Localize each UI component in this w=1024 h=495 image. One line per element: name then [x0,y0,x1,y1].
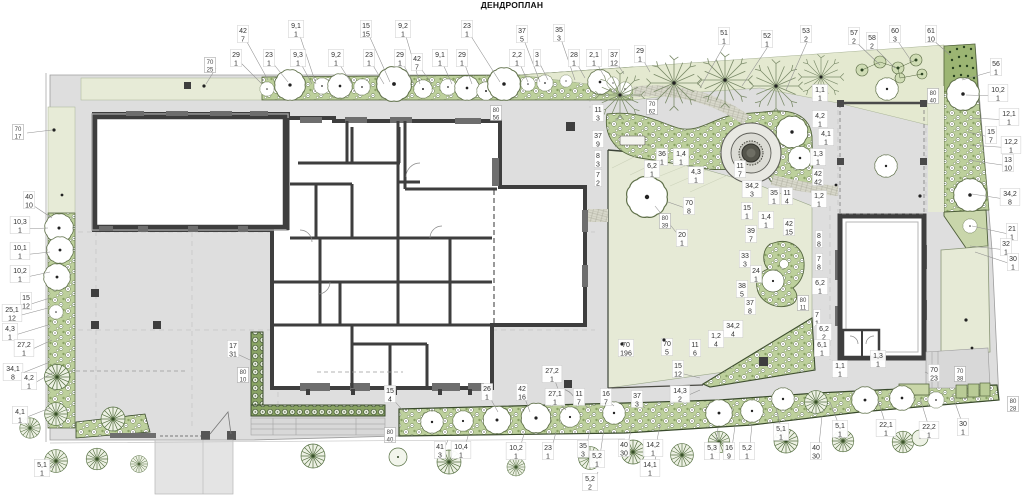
svg-text:38: 38 [738,283,746,290]
svg-text:10,1: 10,1 [13,245,27,252]
svg-text:70: 70 [685,200,693,207]
svg-text:1: 1 [1011,265,1015,272]
svg-text:1: 1 [764,223,768,230]
svg-text:7: 7 [241,37,245,44]
svg-text:2,1: 2,1 [589,52,599,59]
svg-text:1,3: 1,3 [873,353,883,360]
svg-text:1: 1 [679,160,683,167]
svg-text:2: 2 [678,397,682,404]
svg-text:37: 37 [746,300,754,307]
svg-text:22,2: 22,2 [922,424,936,431]
svg-text:52: 52 [763,33,771,40]
svg-text:8: 8 [817,242,821,249]
svg-text:5: 5 [520,37,524,44]
svg-text:1,1: 1,1 [835,363,845,370]
svg-text:1: 1 [816,160,820,167]
svg-text:16: 16 [518,395,526,402]
svg-text:27,2: 27,2 [17,342,31,349]
svg-text:10,3: 10,3 [13,219,27,226]
svg-text:7: 7 [577,400,581,407]
svg-text:2: 2 [852,39,856,46]
svg-text:1: 1 [18,254,22,261]
svg-text:11: 11 [736,163,743,170]
svg-text:5,1: 5,1 [835,423,845,430]
svg-text:8: 8 [1008,200,1012,207]
svg-text:2,2: 2,2 [512,52,522,59]
svg-text:57: 57 [850,30,858,37]
svg-text:53: 53 [802,28,810,35]
svg-text:62: 62 [649,110,656,116]
svg-text:1: 1 [765,42,769,49]
svg-text:1: 1 [694,178,698,185]
svg-text:3: 3 [535,52,539,59]
svg-text:1: 1 [824,140,828,147]
svg-text:30: 30 [959,421,967,428]
svg-text:27,1: 27,1 [548,391,562,398]
svg-text:31: 31 [229,352,237,359]
svg-text:1: 1 [638,57,642,64]
svg-text:30: 30 [812,454,820,461]
svg-text:11: 11 [575,391,582,398]
svg-text:1: 1 [710,454,714,461]
svg-text:26: 26 [483,386,491,393]
svg-text:1: 1 [234,61,238,68]
svg-text:1: 1 [779,435,783,442]
svg-text:1: 1 [722,39,726,46]
svg-text:1: 1 [884,431,888,438]
svg-text:3: 3 [438,453,442,460]
svg-text:60: 60 [891,28,899,35]
svg-text:6,2: 6,2 [647,163,657,170]
svg-text:4: 4 [714,342,718,349]
svg-text:39: 39 [747,228,755,235]
svg-text:5,1: 5,1 [776,426,786,433]
svg-text:9,2: 9,2 [398,23,408,30]
svg-text:15: 15 [743,205,751,212]
svg-text:56: 56 [992,61,1000,68]
svg-text:37: 37 [610,52,618,59]
svg-text:8: 8 [11,375,15,382]
svg-text:1: 1 [550,377,554,384]
svg-text:1: 1 [660,160,664,167]
svg-text:1: 1 [651,451,655,458]
svg-text:42: 42 [785,221,793,228]
svg-text:3: 3 [635,402,639,409]
svg-text:1: 1 [40,471,44,478]
svg-text:23: 23 [365,52,373,59]
svg-text:7: 7 [738,172,742,179]
svg-text:1: 1 [772,199,776,206]
svg-text:35: 35 [579,443,587,450]
svg-text:23: 23 [463,23,471,30]
svg-text:1: 1 [27,384,31,391]
svg-text:1: 1 [1009,148,1013,155]
svg-text:11: 11 [691,342,698,349]
svg-text:1: 1 [460,61,464,68]
svg-text:11: 11 [783,190,790,197]
svg-text:4: 4 [731,332,735,339]
svg-text:23: 23 [930,376,938,383]
svg-text:1: 1 [595,462,599,469]
svg-text:1: 1 [459,453,463,460]
svg-text:17: 17 [229,343,237,350]
svg-text:35: 35 [770,190,778,197]
svg-text:1: 1 [294,32,298,39]
svg-text:1,3: 1,3 [813,151,823,158]
svg-text:8: 8 [687,209,691,216]
svg-text:8: 8 [596,153,600,160]
svg-text:1: 1 [648,471,652,478]
svg-text:37: 37 [594,133,602,140]
svg-text:3: 3 [596,162,600,169]
svg-text:3: 3 [581,452,585,459]
svg-text:1: 1 [18,418,22,425]
svg-text:7: 7 [817,256,821,263]
svg-text:5,1: 5,1 [37,462,47,469]
svg-text:1: 1 [515,61,519,68]
svg-text:16: 16 [725,445,733,452]
svg-text:7: 7 [604,400,608,407]
svg-text:34,2: 34,2 [726,323,740,330]
svg-text:70: 70 [15,127,22,133]
svg-text:1: 1 [838,432,842,439]
svg-text:15: 15 [22,295,30,302]
svg-text:4,1: 4,1 [821,131,831,138]
svg-text:12,1: 12,1 [1002,111,1016,118]
svg-text:1: 1 [961,430,965,437]
svg-text:12: 12 [8,316,16,323]
svg-text:5,2: 5,2 [592,453,602,460]
svg-text:1: 1 [572,61,576,68]
svg-text:12,2: 12,2 [1004,139,1018,146]
svg-text:1: 1 [1007,120,1011,127]
svg-text:1: 1 [927,433,931,440]
svg-text:34,2: 34,2 [745,183,759,190]
svg-text:3: 3 [893,37,897,44]
svg-text:4,2: 4,2 [24,375,34,382]
svg-text:80: 80 [662,216,669,222]
svg-text:1: 1 [754,277,758,284]
svg-text:30: 30 [1009,256,1017,263]
svg-text:20: 20 [678,232,686,239]
svg-text:51: 51 [720,30,728,37]
svg-text:1: 1 [535,61,539,68]
svg-text:11: 11 [594,107,601,114]
svg-text:1: 1 [18,277,22,284]
svg-text:4,1: 4,1 [15,409,25,416]
svg-text:10,4: 10,4 [454,444,468,451]
svg-text:1: 1 [514,454,518,461]
svg-text:37: 37 [518,28,526,35]
svg-text:7: 7 [815,312,819,319]
svg-text:1: 1 [367,61,371,68]
svg-text:2: 2 [870,44,874,51]
svg-text:15: 15 [987,129,995,136]
svg-text:3: 3 [750,192,754,199]
svg-text:70: 70 [207,60,214,66]
svg-text:22,1: 22,1 [879,422,893,429]
svg-text:80: 80 [800,298,807,304]
svg-text:24: 24 [752,268,760,275]
svg-text:14,2: 14,2 [646,442,660,449]
svg-text:34,1: 34,1 [6,366,20,373]
svg-text:42: 42 [518,386,526,393]
svg-text:23: 23 [544,445,552,452]
svg-text:10,2: 10,2 [991,87,1005,94]
svg-text:14,3: 14,3 [673,388,687,395]
svg-text:1: 1 [546,454,550,461]
svg-text:56: 56 [493,116,500,122]
svg-text:1: 1 [818,122,822,129]
svg-text:61: 61 [927,28,935,35]
svg-text:40: 40 [620,442,628,449]
svg-text:10: 10 [25,203,33,210]
svg-text:1: 1 [994,70,998,77]
svg-text:5,2: 5,2 [585,476,595,483]
svg-text:1: 1 [818,289,822,296]
svg-text:6,2: 6,2 [819,326,829,333]
svg-text:80: 80 [493,108,500,114]
svg-text:1: 1 [820,351,824,358]
svg-text:1: 1 [818,96,822,103]
svg-text:35: 35 [555,27,563,34]
svg-text:40: 40 [930,99,937,105]
svg-text:4: 4 [785,199,789,206]
svg-text:2: 2 [804,37,808,44]
svg-text:1: 1 [8,335,12,342]
svg-text:10: 10 [1004,166,1012,173]
svg-text:8: 8 [817,265,821,272]
svg-text:2: 2 [596,181,600,188]
svg-text:28: 28 [570,52,578,59]
svg-text:34,2: 34,2 [1003,191,1017,198]
svg-text:1: 1 [485,395,489,402]
svg-text:70: 70 [649,102,656,108]
svg-text:33: 33 [741,253,749,260]
svg-text:15: 15 [674,363,682,370]
svg-text:29: 29 [636,48,644,55]
svg-text:8: 8 [817,233,821,240]
svg-text:17: 17 [15,135,22,141]
svg-text:39: 39 [662,224,669,230]
svg-text:4,2: 4,2 [815,113,825,120]
svg-text:3: 3 [596,116,600,123]
svg-text:9,1: 9,1 [435,52,445,59]
svg-text:1: 1 [553,400,557,407]
svg-text:1: 1 [650,172,654,179]
svg-text:ДЕНДРОПЛАН: ДЕНДРОПЛАН [481,0,543,10]
svg-text:29: 29 [396,52,404,59]
svg-text:7: 7 [989,138,993,145]
svg-text:1: 1 [876,362,880,369]
svg-text:80: 80 [1010,399,1017,405]
svg-text:1: 1 [745,454,749,461]
svg-text:12: 12 [610,61,618,68]
svg-text:6,1: 6,1 [817,342,827,349]
svg-text:1,2: 1,2 [814,193,824,200]
svg-text:1: 1 [438,61,442,68]
svg-text:7: 7 [749,237,753,244]
svg-text:2: 2 [588,485,592,492]
svg-text:4: 4 [388,397,392,404]
svg-text:10,2: 10,2 [13,268,27,275]
svg-text:10: 10 [240,378,247,384]
svg-text:27,2: 27,2 [545,368,559,375]
svg-text:1: 1 [401,32,405,39]
svg-text:6,2: 6,2 [815,280,825,287]
svg-text:4,3: 4,3 [5,326,15,333]
svg-text:25: 25 [207,68,214,74]
svg-text:42: 42 [814,180,822,187]
svg-text:41: 41 [436,444,444,451]
svg-text:40: 40 [25,194,33,201]
svg-text:23: 23 [265,52,273,59]
svg-text:15: 15 [362,32,370,39]
svg-text:42: 42 [814,171,822,178]
svg-text:3: 3 [743,262,747,269]
svg-text:1,1: 1,1 [815,87,825,94]
svg-text:25,1: 25,1 [5,307,19,314]
svg-text:1: 1 [18,228,22,235]
svg-text:29: 29 [458,52,466,59]
svg-text:6: 6 [693,351,697,358]
svg-text:1: 1 [465,32,469,39]
svg-text:1: 1 [296,61,300,68]
svg-text:36: 36 [658,151,666,158]
svg-text:5,2: 5,2 [742,445,752,452]
svg-text:9: 9 [596,142,600,149]
svg-text:80: 80 [930,91,937,97]
svg-text:29: 29 [232,52,240,59]
svg-text:58: 58 [868,35,876,42]
svg-text:10: 10 [927,37,935,44]
svg-text:1: 1 [996,96,1000,103]
svg-text:196: 196 [620,351,632,358]
svg-text:42: 42 [413,56,421,63]
svg-text:4,3: 4,3 [691,169,701,176]
svg-text:12: 12 [22,304,30,311]
svg-text:8: 8 [748,309,752,316]
svg-text:5: 5 [665,350,669,357]
svg-text:5: 5 [740,292,744,299]
svg-text:7: 7 [596,172,600,179]
svg-text:32: 32 [1002,241,1010,248]
svg-text:70: 70 [957,369,964,375]
svg-text:1: 1 [838,372,842,379]
svg-text:80: 80 [240,370,247,376]
svg-text:38: 38 [957,377,964,383]
svg-text:9,3: 9,3 [293,52,303,59]
svg-text:1: 1 [398,61,402,68]
svg-text:14,1: 14,1 [643,462,657,469]
svg-text:40: 40 [812,445,820,452]
svg-text:1: 1 [267,61,271,68]
svg-text:11: 11 [800,306,807,312]
svg-text:80: 80 [387,430,394,436]
svg-text:13: 13 [1004,157,1012,164]
svg-text:15: 15 [386,388,394,395]
svg-text:1,2: 1,2 [711,333,721,340]
svg-text:9: 9 [727,454,731,461]
svg-text:1,4: 1,4 [676,151,686,158]
svg-text:1: 1 [680,241,684,248]
svg-text:42: 42 [239,28,247,35]
svg-text:5,3: 5,3 [707,445,717,452]
svg-text:16: 16 [602,391,610,398]
svg-text:70: 70 [930,367,938,374]
svg-text:30: 30 [620,451,628,458]
svg-text:1: 1 [817,202,821,209]
svg-text:10,2: 10,2 [509,445,523,452]
svg-text:1: 1 [592,61,596,68]
svg-text:1: 1 [334,61,338,68]
svg-text:15: 15 [362,23,370,30]
svg-text:1: 1 [745,214,749,221]
svg-text:7: 7 [415,65,419,72]
svg-text:15: 15 [785,230,793,237]
svg-text:1: 1 [22,351,26,358]
svg-text:12: 12 [674,372,682,379]
svg-text:9,2: 9,2 [331,52,341,59]
svg-text:21: 21 [1008,226,1016,233]
svg-text:1,4: 1,4 [761,214,771,221]
svg-text:28: 28 [1010,407,1017,413]
svg-text:37: 37 [633,393,641,400]
svg-text:9,1: 9,1 [291,23,301,30]
svg-text:70: 70 [663,341,671,348]
svg-text:3: 3 [557,36,561,43]
